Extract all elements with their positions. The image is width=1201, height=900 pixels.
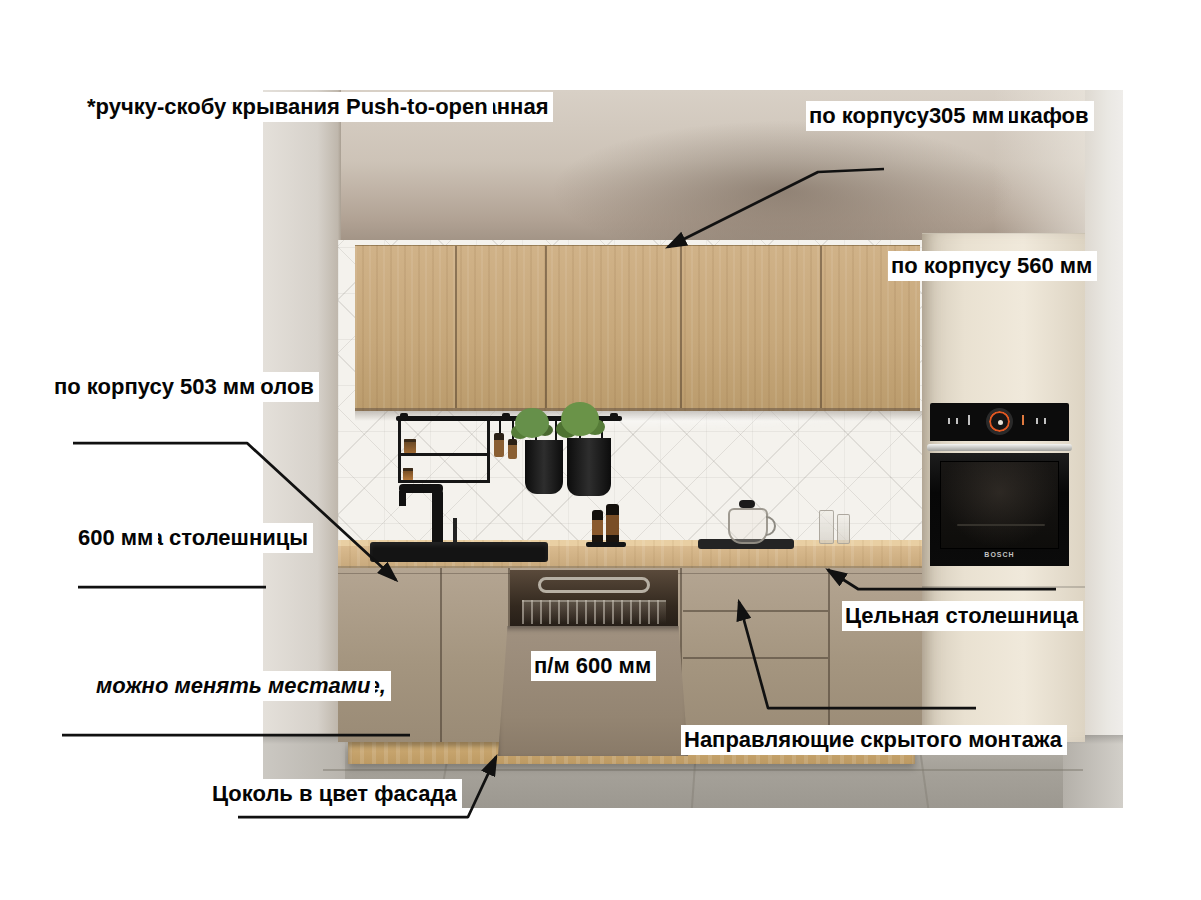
label-line: можно менять местами	[93, 671, 375, 701]
label-line: Цоколь в цвет фасада	[209, 779, 462, 809]
arrow-solid-countertop	[828, 570, 1056, 589]
label-line: по корпусу 560 мм	[888, 251, 1097, 281]
label-line: Цельная столешница	[842, 601, 1083, 631]
label-line: *ручку-скобу	[84, 92, 231, 122]
label-line: п/м 600 мм	[531, 651, 656, 681]
arrow-base-cabinet-depth	[73, 443, 396, 580]
label-line: по корпусу305 мм	[806, 101, 1009, 131]
label-line: 600 мм	[70, 523, 158, 553]
annotated-kitchen-image: BOSCH	[0, 0, 1201, 900]
arrow-upper-cabinet-depth	[668, 169, 884, 247]
annotation-arrows	[0, 0, 1201, 900]
label-line: Направляющие скрытого монтажа	[681, 725, 1067, 755]
label-line: по корпусу 503 мм	[51, 372, 260, 402]
